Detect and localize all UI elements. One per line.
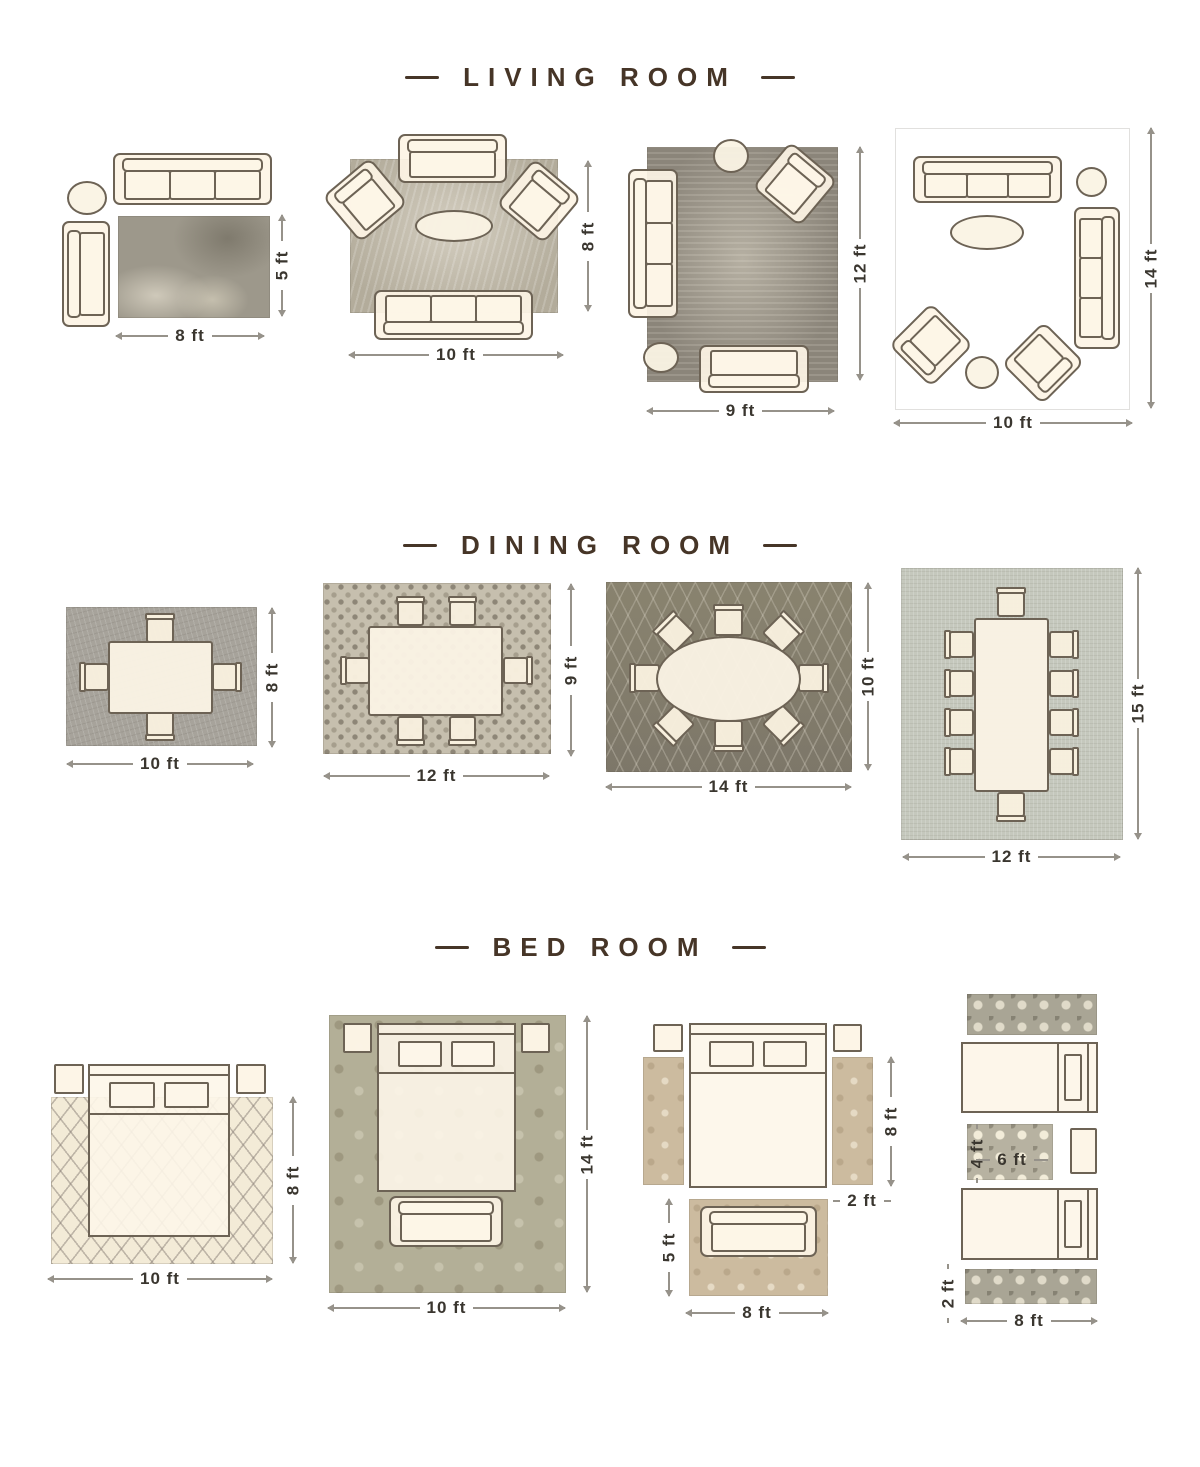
dimension-foot-rug-height: 5 ft (659, 1199, 679, 1296)
loveseat (699, 345, 809, 393)
dimension-rug-height: 8 ft (283, 1097, 303, 1263)
dimension-rug-height: 14 ft (577, 1016, 597, 1292)
dimension-label: 8 ft (580, 221, 597, 251)
oval-dining-table (656, 636, 801, 722)
dimension-rug-height: 8 ft (262, 608, 282, 747)
runner-rug (965, 1269, 1097, 1304)
dining-chair (146, 618, 174, 643)
dining-chair (345, 657, 370, 684)
dimension-label: 9 ft (719, 402, 763, 419)
round-side-table (713, 139, 749, 173)
dining-chair (714, 720, 743, 747)
queen-bed (377, 1023, 516, 1192)
dining-chair (503, 657, 528, 684)
dimension-rug-width: 14 ft (606, 778, 851, 795)
dining-chair (1049, 631, 1074, 658)
dining-chair (212, 663, 237, 691)
dimension-label: 12 ft (852, 244, 869, 284)
dimension-rug-width: 10 ft (349, 346, 563, 363)
dining-chair (449, 601, 476, 626)
dimension-rug-width: 12 ft (324, 767, 549, 784)
dining-chair (1049, 709, 1074, 736)
nightstand (1070, 1128, 1097, 1174)
runner-rug (967, 994, 1097, 1035)
section-title-text: LIVING ROOM (463, 62, 737, 93)
dimension-rug-height: 10 ft (858, 583, 878, 770)
oval-coffee-table (950, 215, 1024, 250)
dimension-label: 5 ft (661, 1233, 678, 1263)
dimension-rug-width: 8 ft (686, 1304, 828, 1321)
dining-table (974, 618, 1049, 792)
title-dash (405, 76, 439, 79)
dining-table (368, 626, 503, 716)
section-title-living-room: LIVING ROOM (0, 62, 1200, 93)
twin-bed (961, 1042, 1098, 1113)
dimension-label: 10 ft (860, 657, 877, 697)
dimension-runner-width: 2 ft (833, 1192, 891, 1209)
dimension-label: 8 ft (735, 1304, 779, 1321)
bench (389, 1196, 503, 1247)
dining-chair (84, 663, 109, 691)
dimension-label: 8 ft (883, 1107, 900, 1137)
loveseat (398, 134, 507, 183)
dimension-center-rug-width: 6 ft (976, 1151, 1048, 1168)
rug-size-guide: LIVING ROOM 5 ft 8 ft 8 ft 10 ft 12 ft 9… (0, 0, 1200, 1467)
dining-chair (1049, 670, 1074, 697)
area-rug (118, 216, 270, 318)
dimension-rug-height: 9 ft (561, 584, 581, 756)
dimension-label: 10 ft (133, 755, 187, 772)
dimension-rug-width: 9 ft (647, 402, 834, 419)
dimension-label: 15 ft (1130, 684, 1147, 724)
dimension-runner-height: 2 ft (938, 1264, 958, 1307)
dining-chair (949, 631, 974, 658)
dimension-label: 8 ft (285, 1165, 302, 1195)
section-title-text: BED ROOM (493, 932, 708, 963)
queen-bed (88, 1064, 230, 1237)
dining-chair (997, 792, 1025, 817)
dining-chair (397, 601, 424, 626)
dimension-label: 10 ft (420, 1299, 474, 1316)
dining-chair (949, 709, 974, 736)
dimension-bed-side: 8 ft (881, 1057, 901, 1186)
runner-rug (643, 1057, 684, 1185)
dimension-label: 5 ft (274, 251, 291, 281)
round-side-table (643, 342, 679, 373)
dimension-rug-width: 10 ft (48, 1270, 272, 1287)
section-title-bed-room: BED ROOM (0, 932, 1200, 963)
nightstand (521, 1023, 550, 1053)
bench (700, 1206, 817, 1257)
dimension-rug-height: 8 ft (578, 161, 598, 311)
dimension-rug-width: 8 ft (116, 327, 264, 344)
dimension-label: 14 ft (579, 1134, 596, 1174)
dimension-label: 9 ft (563, 655, 580, 685)
nightstand (236, 1064, 266, 1094)
dining-chair (397, 716, 424, 741)
chaise (62, 221, 110, 327)
dining-chair (949, 670, 974, 697)
nightstand (54, 1064, 84, 1094)
dimension-rug-width: 10 ft (894, 414, 1132, 431)
dimension-rug-width: 10 ft (67, 755, 253, 772)
three-seat-sofa (628, 169, 678, 318)
section-title-dining-room: DINING ROOM (0, 530, 1200, 561)
title-dash (435, 946, 469, 949)
dimension-label: 8 ft (264, 663, 281, 693)
nightstand (343, 1023, 372, 1053)
dimension-label: 8 ft (1007, 1312, 1051, 1329)
dining-chair (997, 592, 1025, 617)
three-seat-sofa (113, 153, 272, 205)
dining-table (108, 641, 213, 714)
dimension-label: 12 ft (985, 848, 1039, 865)
dimension-label: 6 ft (990, 1151, 1034, 1168)
dimension-label: 14 ft (702, 778, 756, 795)
dining-chair (1049, 748, 1074, 775)
dining-chair (449, 716, 476, 741)
dimension-rug-height: 15 ft (1128, 568, 1148, 839)
dimension-label: 10 ft (133, 1270, 187, 1287)
dimension-label: 2 ft (940, 1279, 957, 1309)
title-dash (403, 544, 437, 547)
runner-rug (832, 1057, 873, 1185)
three-seat-sofa (374, 290, 533, 340)
twin-bed (961, 1188, 1098, 1260)
section-title-text: DINING ROOM (461, 530, 739, 561)
three-seat-sofa (1074, 207, 1120, 349)
title-dash (732, 946, 766, 949)
dining-chair (798, 664, 824, 692)
dimension-rug-height: 5 ft (272, 215, 292, 316)
queen-bed (689, 1023, 827, 1188)
dimension-rug-height: 12 ft (850, 147, 870, 380)
dining-chair (714, 609, 743, 636)
title-dash (763, 544, 797, 547)
dining-chair (146, 711, 174, 736)
dimension-label: 8 ft (168, 327, 212, 344)
dimension-label: 10 ft (429, 346, 483, 363)
dimension-label: 10 ft (986, 414, 1040, 431)
nightstand (653, 1024, 683, 1052)
round-side-table (965, 356, 999, 389)
dimension-label: 2 ft (840, 1192, 884, 1209)
dimension-rug-height: 14 ft (1141, 128, 1161, 408)
nightstand (833, 1024, 862, 1052)
round-side-table (67, 181, 107, 215)
three-seat-sofa (913, 156, 1062, 203)
oval-coffee-table (415, 210, 493, 242)
title-dash (761, 76, 795, 79)
dimension-label: 14 ft (1143, 248, 1160, 288)
dimension-rug-width: 10 ft (328, 1299, 565, 1316)
dimension-rug-width: 12 ft (903, 848, 1120, 865)
dimension-label: 12 ft (410, 767, 464, 784)
dining-chair (949, 748, 974, 775)
dimension-rug-width: 8 ft (961, 1312, 1097, 1329)
round-side-table (1076, 167, 1107, 197)
